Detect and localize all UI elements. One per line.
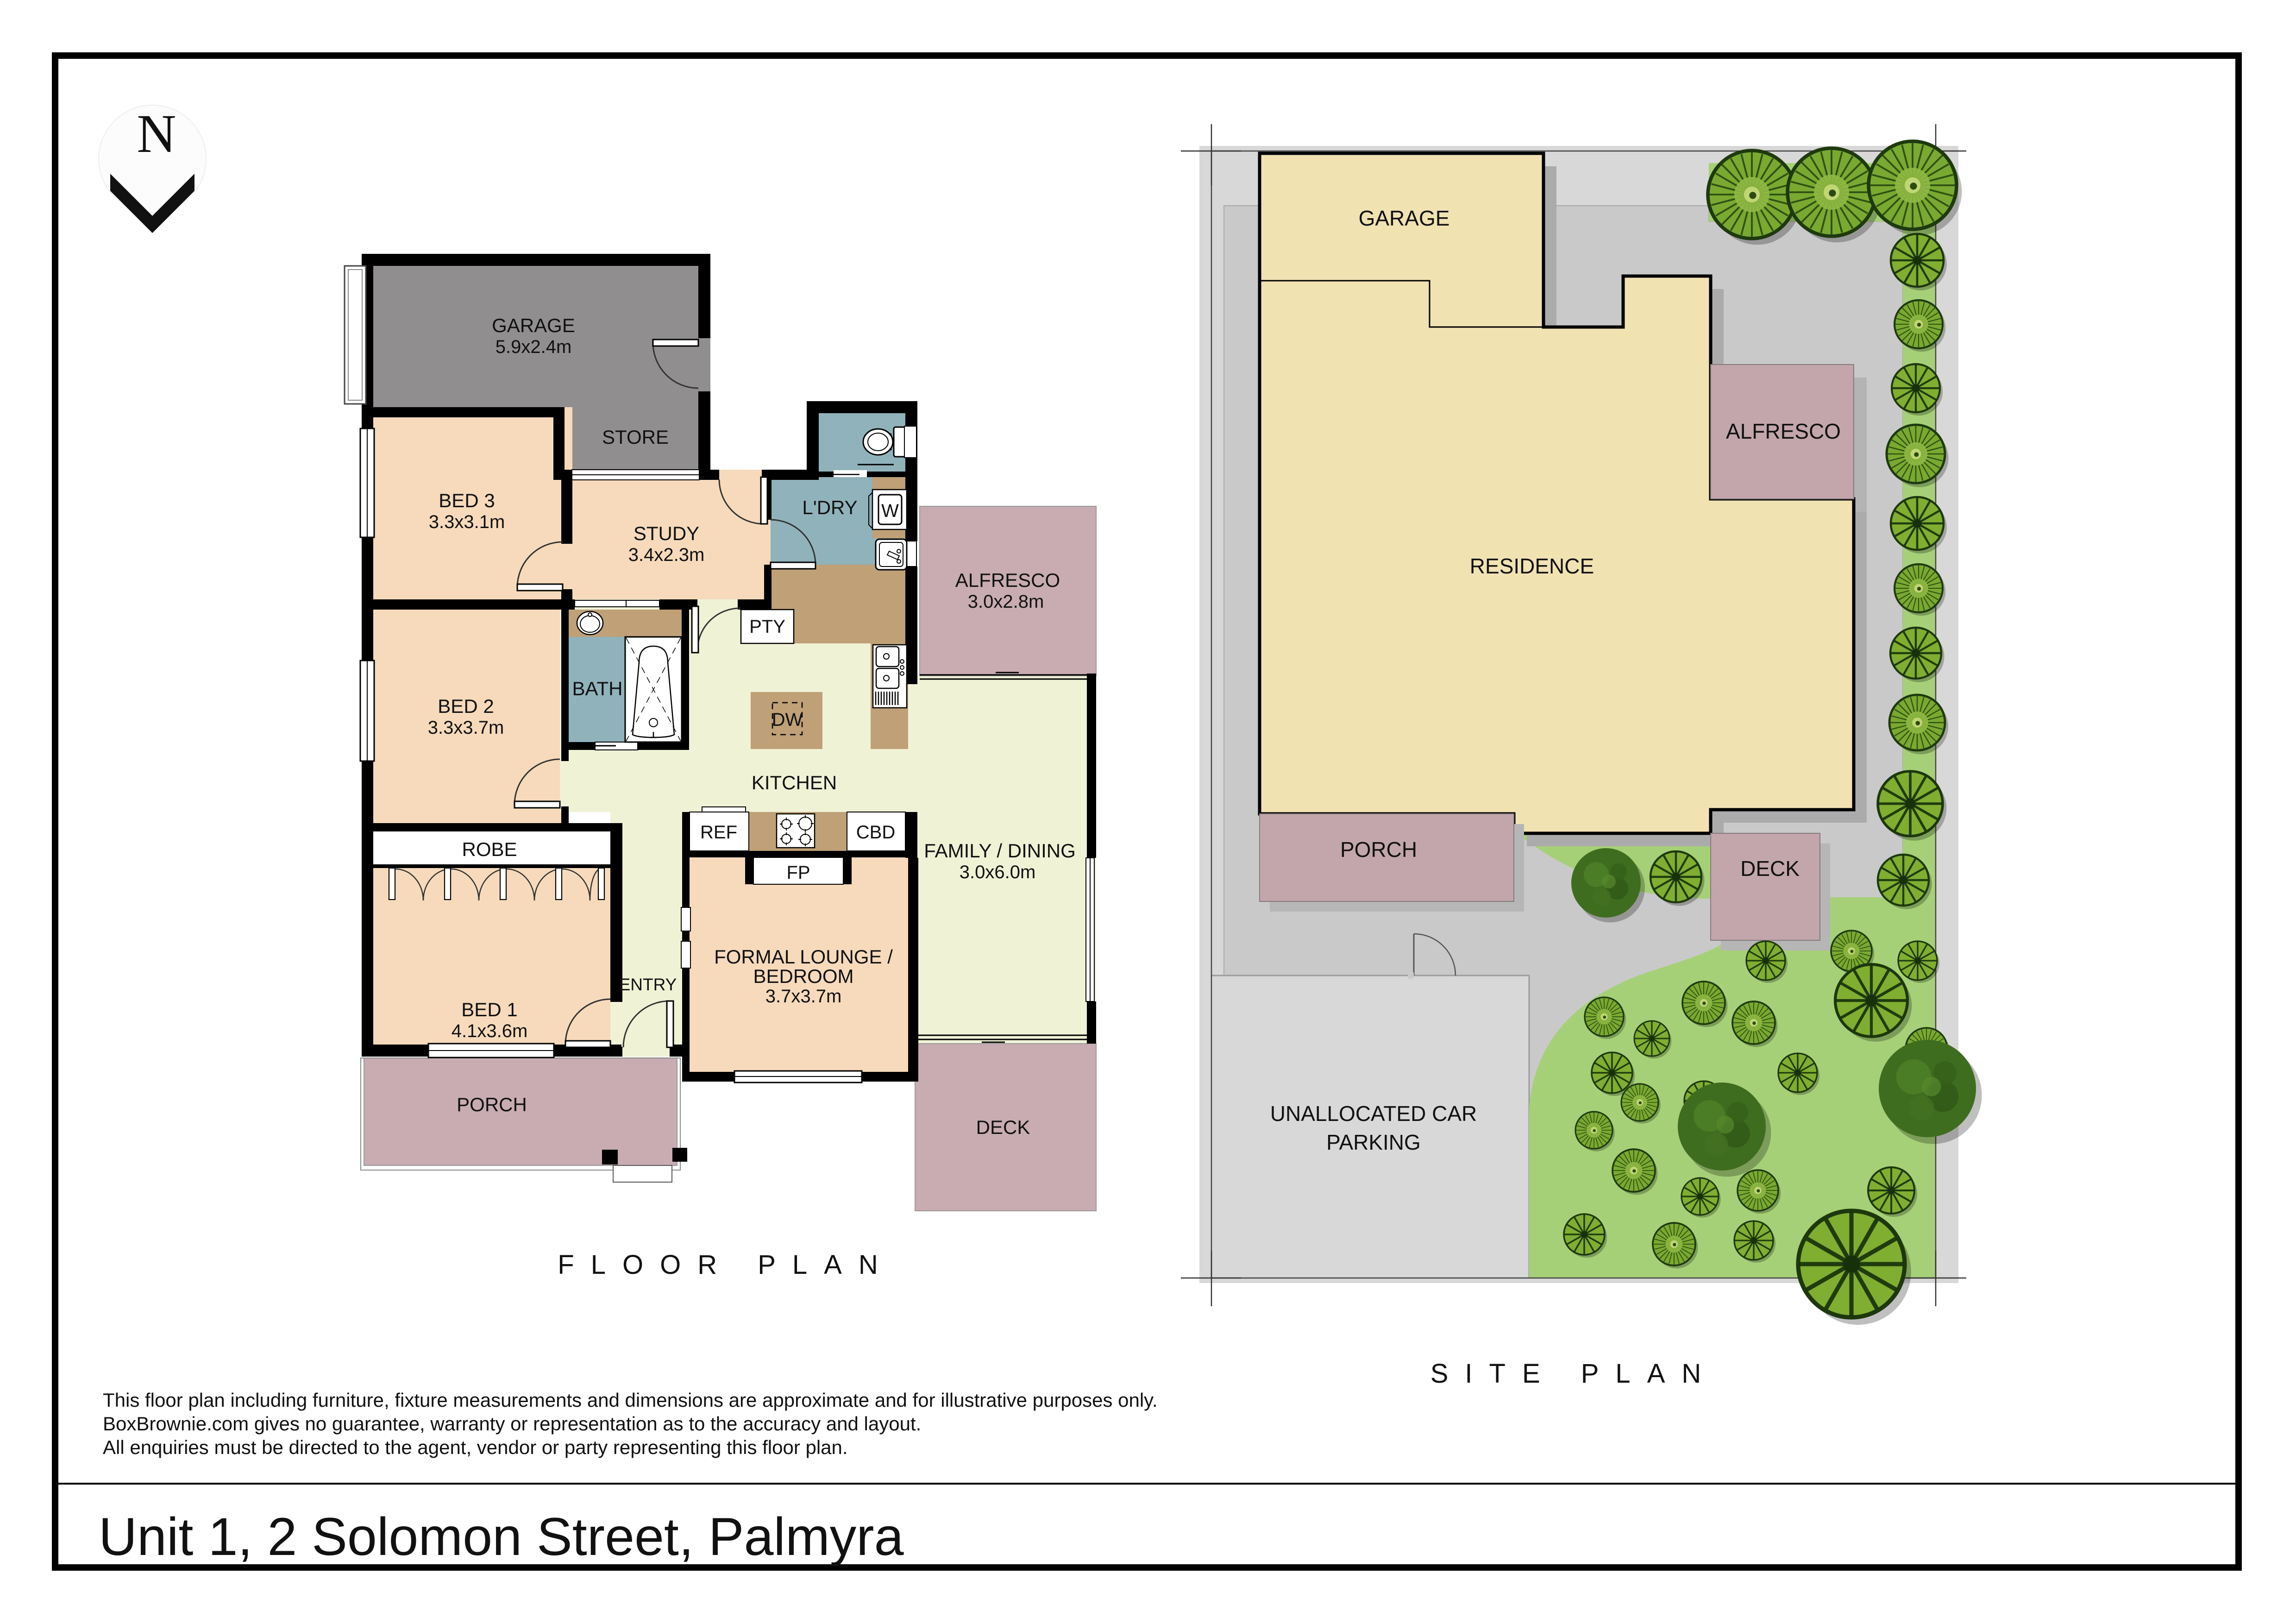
svg-text:ALFRESCO: ALFRESCO	[1726, 419, 1841, 443]
svg-text:Unit 1, 2 Solomon Street, Palm: Unit 1, 2 Solomon Street, Palmyra	[99, 1507, 904, 1567]
svg-text:3.3x3.1m: 3.3x3.1m	[429, 512, 505, 532]
svg-text:FORMAL LOUNGE /: FORMAL LOUNGE /	[714, 946, 893, 968]
svg-text:STUDY: STUDY	[634, 522, 699, 544]
svg-text:SITE PLAN: SITE PLAN	[1430, 1359, 1718, 1389]
svg-text:PORCH: PORCH	[1340, 837, 1417, 862]
svg-text:BED 1: BED 1	[461, 999, 517, 1020]
svg-text:PARKING: PARKING	[1326, 1130, 1421, 1154]
svg-text:FLOOR PLAN: FLOOR PLAN	[558, 1250, 894, 1280]
svg-text:This floor plan including furn: This floor plan including furniture, fix…	[103, 1389, 1158, 1411]
svg-text:ALFRESCO: ALFRESCO	[955, 569, 1060, 591]
svg-text:DW: DW	[772, 710, 803, 730]
svg-text:3.7x3.7m: 3.7x3.7m	[765, 986, 842, 1007]
svg-text:GARAGE: GARAGE	[1359, 206, 1450, 230]
svg-text:4.1x3.6m: 4.1x3.6m	[452, 1021, 528, 1041]
svg-text:3.3x3.7m: 3.3x3.7m	[428, 718, 504, 738]
svg-text:ROBE: ROBE	[462, 838, 517, 860]
svg-text:GARAGE: GARAGE	[492, 315, 575, 336]
svg-text:BED 2: BED 2	[438, 695, 494, 717]
svg-text:DECK: DECK	[1740, 856, 1800, 881]
svg-text:UNALLOCATED CAR: UNALLOCATED CAR	[1270, 1102, 1477, 1126]
svg-text:RESIDENCE: RESIDENCE	[1470, 554, 1594, 578]
svg-text:BED 3: BED 3	[439, 490, 495, 511]
svg-text:FP: FP	[786, 862, 810, 883]
svg-text:KITCHEN: KITCHEN	[752, 772, 837, 793]
svg-text:CBD: CBD	[856, 822, 895, 843]
svg-text:DECK: DECK	[976, 1116, 1030, 1138]
svg-text:L'DRY: L'DRY	[802, 497, 857, 518]
svg-text:STORE: STORE	[602, 426, 669, 448]
svg-text:W: W	[881, 501, 899, 521]
svg-text:N: N	[137, 103, 176, 164]
svg-text:3.0x6.0m: 3.0x6.0m	[960, 862, 1036, 882]
svg-text:5.9x2.4m: 5.9x2.4m	[496, 337, 572, 357]
svg-text:REF: REF	[700, 822, 737, 843]
svg-text:PTY: PTY	[749, 617, 785, 637]
svg-text:3.0x2.8m: 3.0x2.8m	[968, 592, 1044, 612]
svg-text:All enquiries must be directed: All enquiries must be directed to the ag…	[103, 1436, 848, 1458]
svg-text:PORCH: PORCH	[457, 1094, 527, 1115]
svg-text:FAMILY / DINING: FAMILY / DINING	[924, 840, 1076, 862]
svg-text:BEDROOM: BEDROOM	[753, 965, 853, 987]
svg-text:ENTRY: ENTRY	[619, 975, 677, 994]
svg-text:BoxBrownie.com gives no guaran: BoxBrownie.com gives no guarantee, warra…	[103, 1413, 921, 1435]
svg-text:BATH: BATH	[572, 678, 623, 699]
svg-text:3.4x2.3m: 3.4x2.3m	[628, 545, 705, 565]
